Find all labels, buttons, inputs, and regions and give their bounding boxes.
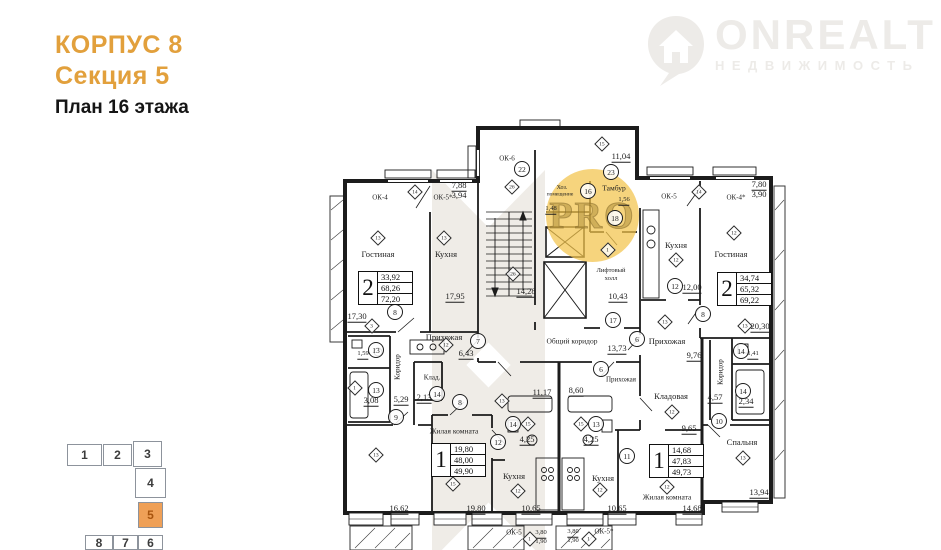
vent-mark: 14 [691,184,707,200]
plan-label: Кухня [435,250,457,259]
vent-mark: 12 [510,483,526,499]
plan-label: 1,59 [357,351,368,360]
vent-mark: 12 [726,225,742,241]
plan-label: 5,29 [394,395,409,406]
vent-mark: 13 [657,314,673,330]
plan-label: 1,41 [747,351,758,360]
area-value: 69,22 [737,295,771,305]
minimap-section-7[interactable]: 7 [113,535,138,550]
vent-mark: 15 [520,416,536,432]
plan-label: Коридор [395,354,402,380]
plan-label: ОК-5 [506,530,522,537]
area-value: 47,83 [669,456,703,467]
plan-label: 1,56 [618,197,629,206]
minimap-section-1[interactable]: 1 [67,444,102,466]
door-number: 8 [387,304,403,320]
vent-mark: 12 [664,404,680,420]
vent-mark: 13 [370,230,386,246]
plan-label: Кладовая [654,392,688,401]
plan-label: 6,43 [459,349,474,360]
vent-mark: 14 [407,184,423,200]
minimap-section-4[interactable]: 4 [135,468,166,498]
apartment-info-table: 114,6847,8349,73 [649,444,704,478]
plan-label: 17,95 [445,292,464,303]
plan-label: Лифтовый [596,268,625,275]
plan-label: 1,48 [545,206,556,215]
plan-label: ОК-5 [661,194,677,201]
door-number: 7 [470,333,486,349]
plan-label: Тамбур [602,184,626,192]
door-number: 6 [593,361,609,377]
area-value: 65,32 [737,284,771,295]
door-number: 18 [607,210,623,226]
plan-label: Кухня [503,472,525,481]
area-value: 49,73 [669,467,703,477]
vent-mark: 13 [368,447,384,463]
door-number: 14 [505,416,521,432]
door-number: 16 [580,183,596,199]
plan-label: Спальня [727,438,758,447]
plan-label: Гостиная [362,250,395,259]
minimap-section-8[interactable]: 8 [85,535,113,550]
minimap-section-6[interactable]: 6 [138,535,163,550]
area-value: 49,90 [451,466,485,476]
plan-label: 3,90 [752,190,767,199]
door-number: 17 [605,312,621,328]
plan-label: Хоз. [557,185,568,191]
door-number: 14 [733,343,749,359]
plan-label: 4,25 [520,435,535,446]
door-number: 13 [368,342,384,358]
door-number: 12 [490,434,506,450]
plan-label: 11,04 [612,152,631,163]
plan-label: ОК-5* [433,195,452,202]
vent-mark: 13 [436,230,452,246]
apartment-info-table: 233,9268,2672,20 [358,271,413,305]
area-value: 14,68 [669,445,703,456]
plan-label: 9,65 [682,424,697,435]
plan-label: Прихожая [606,377,636,384]
plan-label: 14,68 [682,504,701,515]
plan-label: 13,94 [749,488,768,499]
plan-label: Кухня [665,241,687,250]
door-number: 13 [368,382,384,398]
plan-label: 4,25 [584,435,599,446]
plan-label: Прихожая [649,337,685,346]
vent-mark: 15 [573,416,589,432]
door-number: 10 [711,413,727,429]
plan-annotations: ГостинаяКухняПрихожаяХоз.помещениеТамбур… [0,0,941,550]
floor-plan-page: КОРПУС 8 Секция 5 План 16 этажа ONREALT … [0,0,941,550]
door-number: 13 [588,416,604,432]
plan-label: 3,94 [452,191,467,200]
plan-label: ОК-4* [726,195,745,202]
door-number: 14 [429,386,445,402]
plan-label: 14,28 [516,287,535,298]
room-count: 2 [359,272,378,304]
door-number: 23 [603,164,619,180]
plan-label: помещение [547,192,574,198]
room-count: 1 [650,445,669,477]
vent-mark: 13 [735,450,751,466]
plan-label: холл [605,276,618,283]
plan-label: 11,17 [533,388,552,399]
area-value: 33,92 [378,272,412,283]
vent-mark: 26 [505,266,521,282]
minimap-section-2[interactable]: 2 [103,444,132,466]
apartment-info-table: 119,8048,0049,90 [431,443,486,477]
plan-label: 10,65 [607,504,626,515]
plan-label: Коридор [718,359,725,385]
door-number: 11 [619,448,635,464]
vent-mark: 1 [600,242,616,258]
plan-label: 17,30 [347,312,366,323]
vent-mark: 15 [594,136,610,152]
door-number: 9 [388,409,404,425]
area-value: 68,26 [378,283,412,294]
plan-label: ОК-4 [372,195,388,202]
area-value: 34,74 [737,273,771,284]
plan-label: ОК-5* [594,529,613,536]
door-number: 22 [514,161,530,177]
vent-mark: 12 [668,252,684,268]
plan-label: Кухня [592,474,614,483]
door-number: 8 [695,306,711,322]
door-number: 6 [629,331,645,347]
apartment-info-table: 234,7465,3269,22 [717,272,772,306]
plan-label: 10,65 [521,504,540,515]
plan-label: Общий коридор [546,337,597,345]
minimap-section-3[interactable]: 3 [133,441,162,467]
plan-label: 13,73 [607,344,626,355]
door-number: 14 [735,383,751,399]
room-count: 1 [432,444,451,476]
area-value: 19,80 [451,444,485,455]
plan-label: 12,00 [682,283,701,294]
minimap-section-5[interactable]: 5 [138,502,163,528]
area-value: 48,00 [451,455,485,466]
plan-label: Жилая комната [430,427,479,435]
room-count: 2 [718,273,737,305]
plan-label: Клад. [424,375,441,382]
plan-label: 9,76 [687,351,702,362]
door-number: 12 [667,278,683,294]
plan-label: 16,62 [389,504,408,515]
plan-label: 4,57 [708,393,723,404]
plan-label: Гостиная [715,250,748,259]
plan-label: ОК-6 [499,156,515,163]
plan-label: 20,30 [750,322,769,333]
vent-mark: 12 [592,482,608,498]
door-number: 8 [452,394,468,410]
plan-label: 10,43 [608,292,627,303]
vent-mark: 1 [347,380,363,396]
vent-mark: 13 [494,393,510,409]
area-value: 72,20 [378,294,412,304]
vent-mark: 26 [504,179,520,195]
plan-label: 19,80 [466,504,485,515]
vent-mark: 15 [445,476,461,492]
plan-label: 8,60 [569,386,584,397]
plan-label: 1,90 [567,538,578,545]
